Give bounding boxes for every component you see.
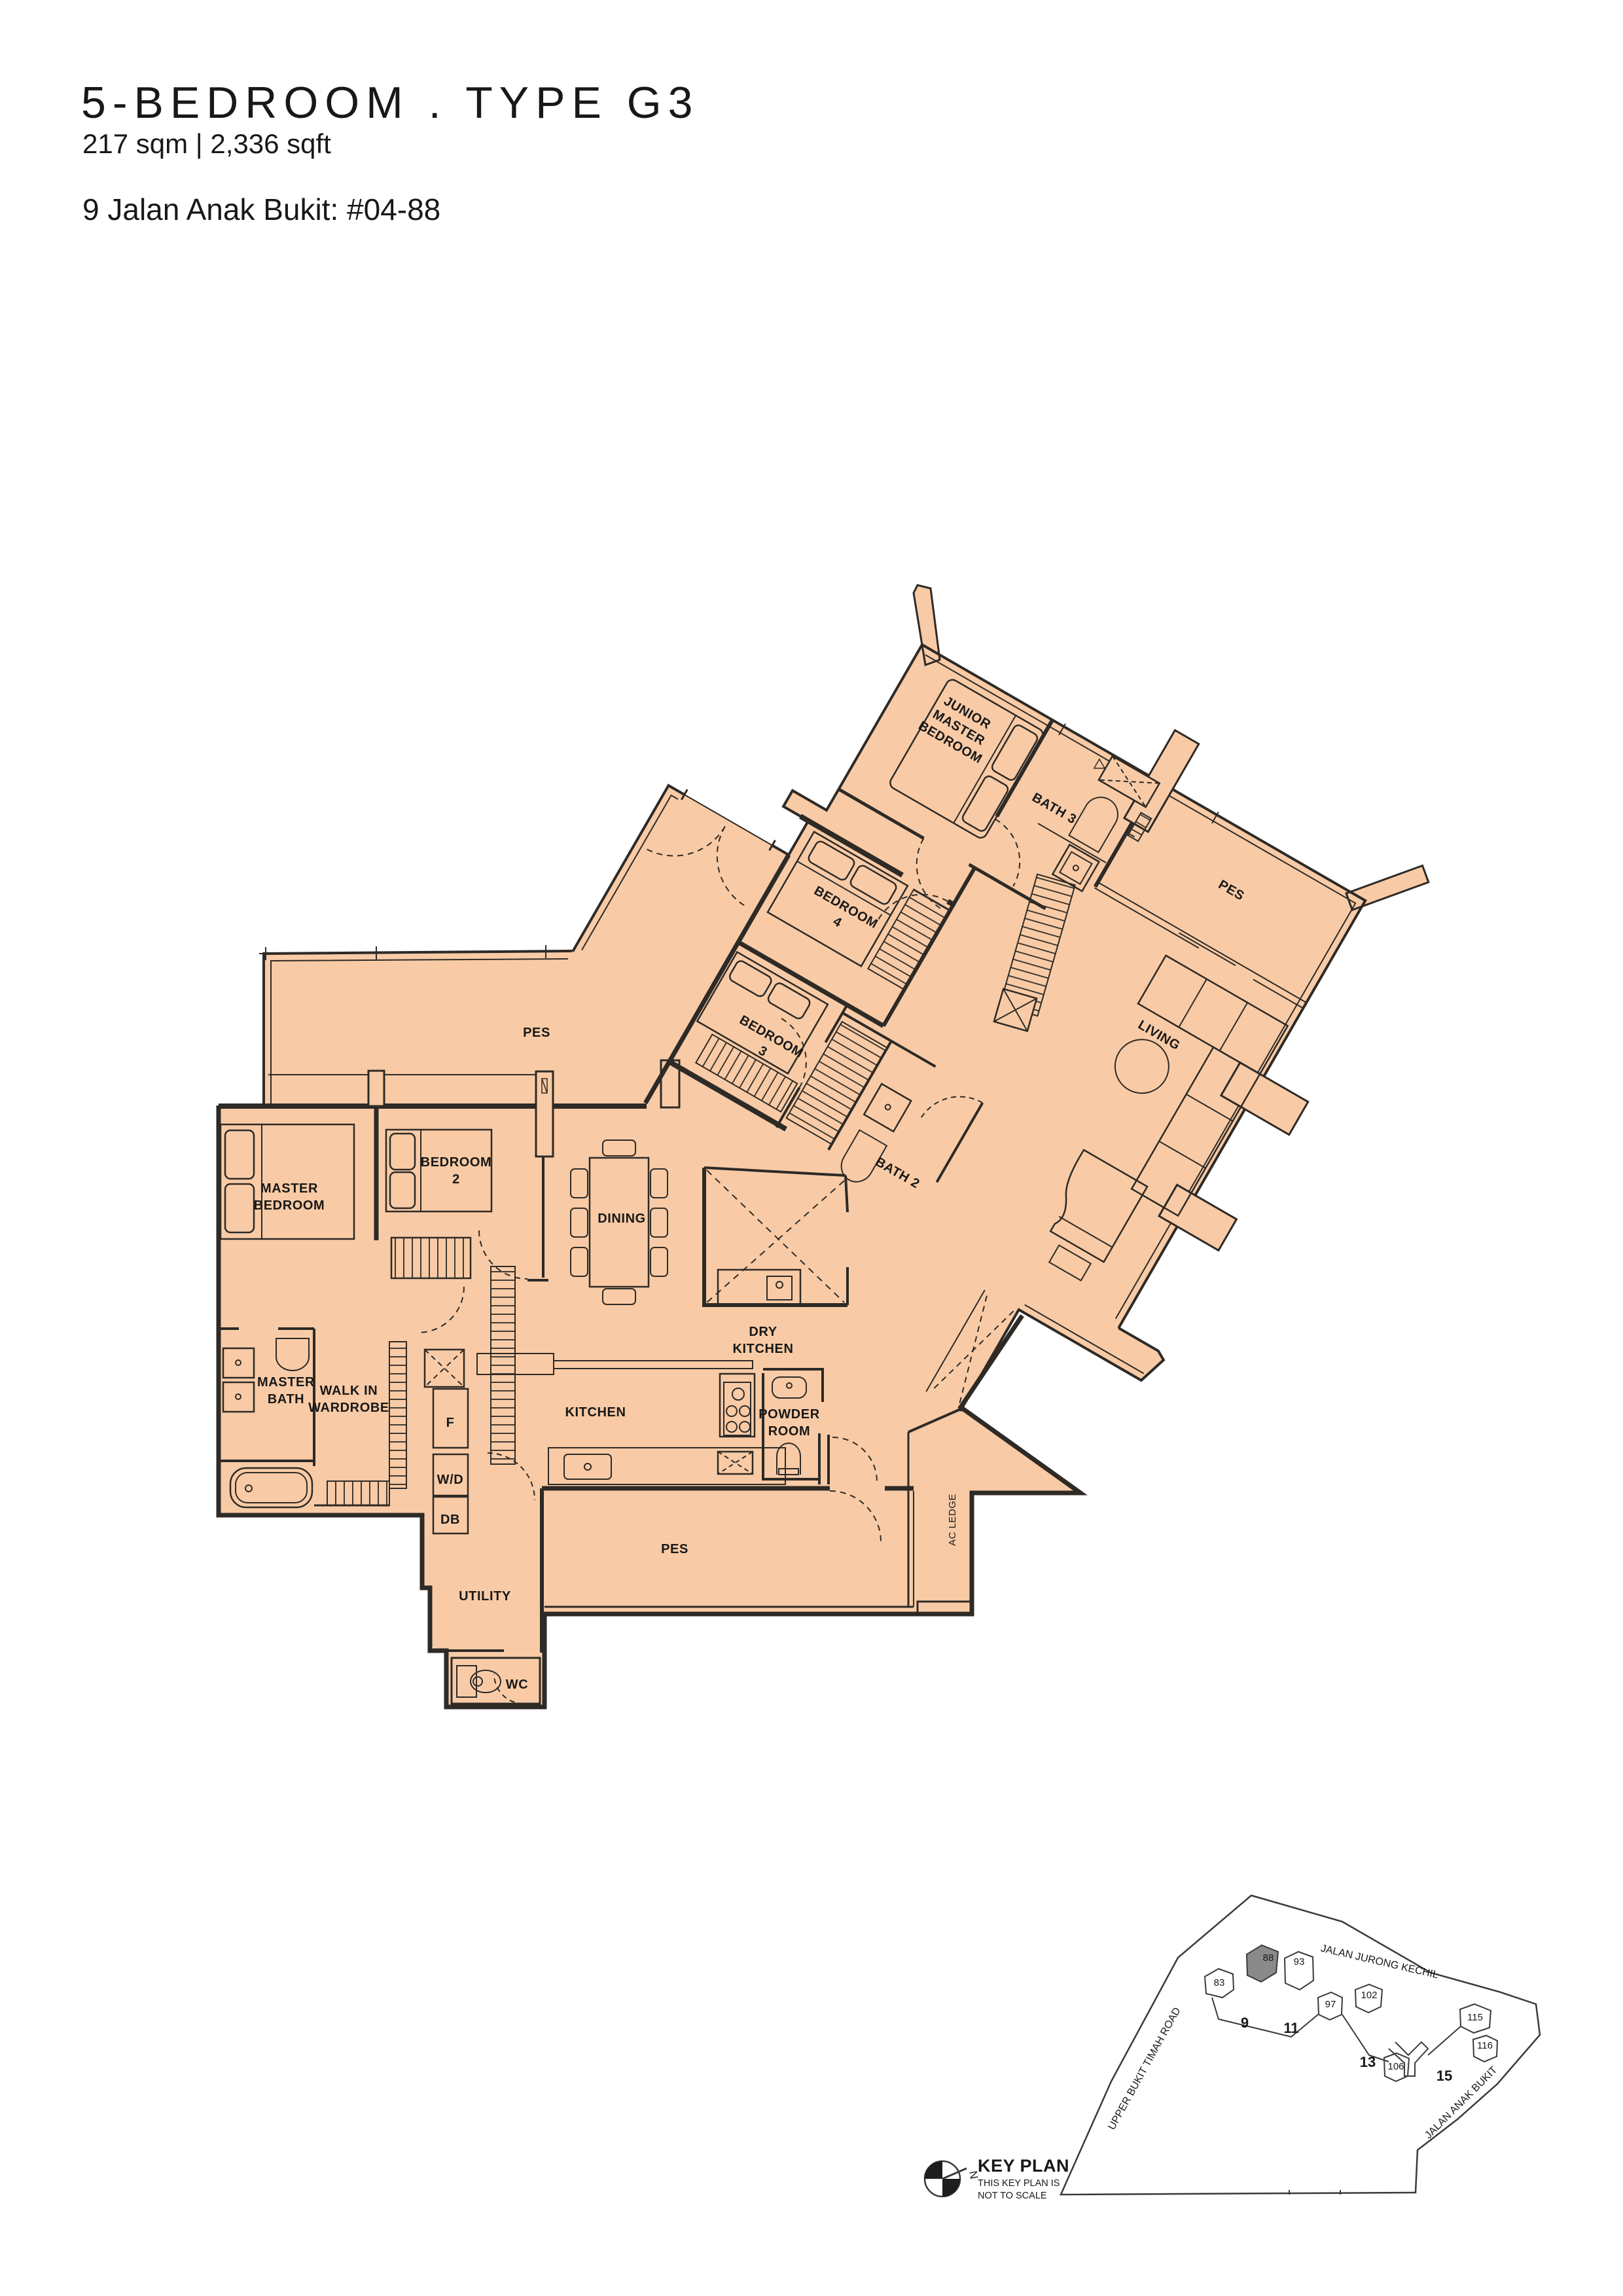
svg-text:DRY: DRY (749, 1325, 777, 1339)
svg-text:BATH: BATH (268, 1392, 304, 1407)
svg-text:MASTER: MASTER (260, 1181, 318, 1196)
svg-text:2: 2 (452, 1172, 460, 1187)
svg-text:106: 106 (1387, 2061, 1404, 2072)
svg-text:WALK IN: WALK IN (320, 1384, 378, 1398)
svg-text:9 Jalan Anak Bukit: #04-88: 9 Jalan Anak Bukit: #04-88 (82, 192, 440, 226)
svg-text:WARDROBE: WARDROBE (308, 1401, 389, 1415)
svg-text:83: 83 (1214, 1977, 1225, 1988)
svg-text:88: 88 (1263, 1952, 1274, 1964)
svg-text:93: 93 (1294, 1956, 1305, 1967)
svg-text:PES: PES (661, 1542, 688, 1556)
svg-text:15: 15 (1436, 2068, 1452, 2084)
svg-text:F: F (446, 1416, 455, 1430)
svg-text:97: 97 (1325, 1999, 1336, 2010)
svg-text:13: 13 (1360, 2054, 1376, 2070)
svg-text:5-BEDROOM . TYPE G3: 5-BEDROOM . TYPE G3 (81, 78, 699, 128)
svg-text:102: 102 (1361, 1990, 1377, 2001)
svg-text:11: 11 (1283, 2020, 1298, 2036)
svg-text:W/D: W/D (437, 1473, 464, 1487)
svg-text:116: 116 (1477, 2040, 1493, 2051)
svg-text:POWDER: POWDER (758, 1407, 820, 1422)
svg-text:NOT TO SCALE: NOT TO SCALE (978, 2191, 1047, 2201)
svg-text:THIS KEY PLAN IS: THIS KEY PLAN IS (978, 2178, 1060, 2189)
svg-text:KITCHEN: KITCHEN (565, 1405, 626, 1420)
svg-text:217 sqm | 2,336 sqft: 217 sqm | 2,336 sqft (82, 128, 331, 159)
svg-text:9: 9 (1241, 2015, 1249, 2031)
svg-text:MASTER: MASTER (257, 1375, 315, 1390)
svg-text:KEY PLAN: KEY PLAN (978, 2156, 1069, 2176)
svg-text:UTILITY: UTILITY (459, 1589, 511, 1604)
svg-text:WC: WC (506, 1677, 529, 1692)
svg-text:BEDROOM: BEDROOM (254, 1198, 325, 1213)
svg-text:KITCHEN: KITCHEN (732, 1342, 793, 1356)
svg-text:115: 115 (1467, 2012, 1483, 2023)
svg-text:PES: PES (523, 1026, 550, 1040)
svg-text:BEDROOM: BEDROOM (421, 1155, 492, 1170)
svg-text:DB: DB (440, 1513, 460, 1527)
svg-text:AC LEDGE: AC LEDGE (947, 1494, 958, 1546)
svg-text:DINING: DINING (597, 1211, 646, 1226)
svg-text:ROOM: ROOM (768, 1424, 811, 1439)
